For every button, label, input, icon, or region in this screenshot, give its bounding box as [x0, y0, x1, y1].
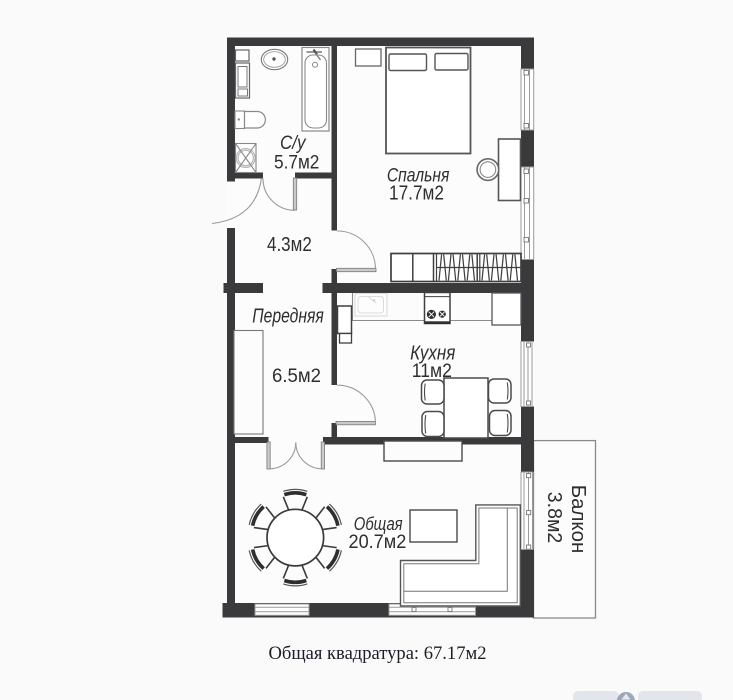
svg-text:3.8м2: 3.8м2	[543, 492, 565, 543]
svg-text:4.3м2: 4.3м2	[267, 234, 312, 256]
svg-text:Передняя: Передняя	[252, 306, 324, 328]
svg-text:11м2: 11м2	[412, 361, 452, 382]
svg-text:5.7м2: 5.7м2	[274, 152, 319, 174]
svg-text:6.5м2: 6.5м2	[272, 366, 321, 387]
svg-text:17.7м2: 17.7м2	[389, 183, 444, 205]
svg-text:20.7м2: 20.7м2	[349, 531, 407, 553]
svg-text:Общая квадратура: 67.17м2: Общая квадратура: 67.17м2	[269, 643, 487, 664]
svg-text:Балкон: Балкон	[567, 485, 589, 554]
